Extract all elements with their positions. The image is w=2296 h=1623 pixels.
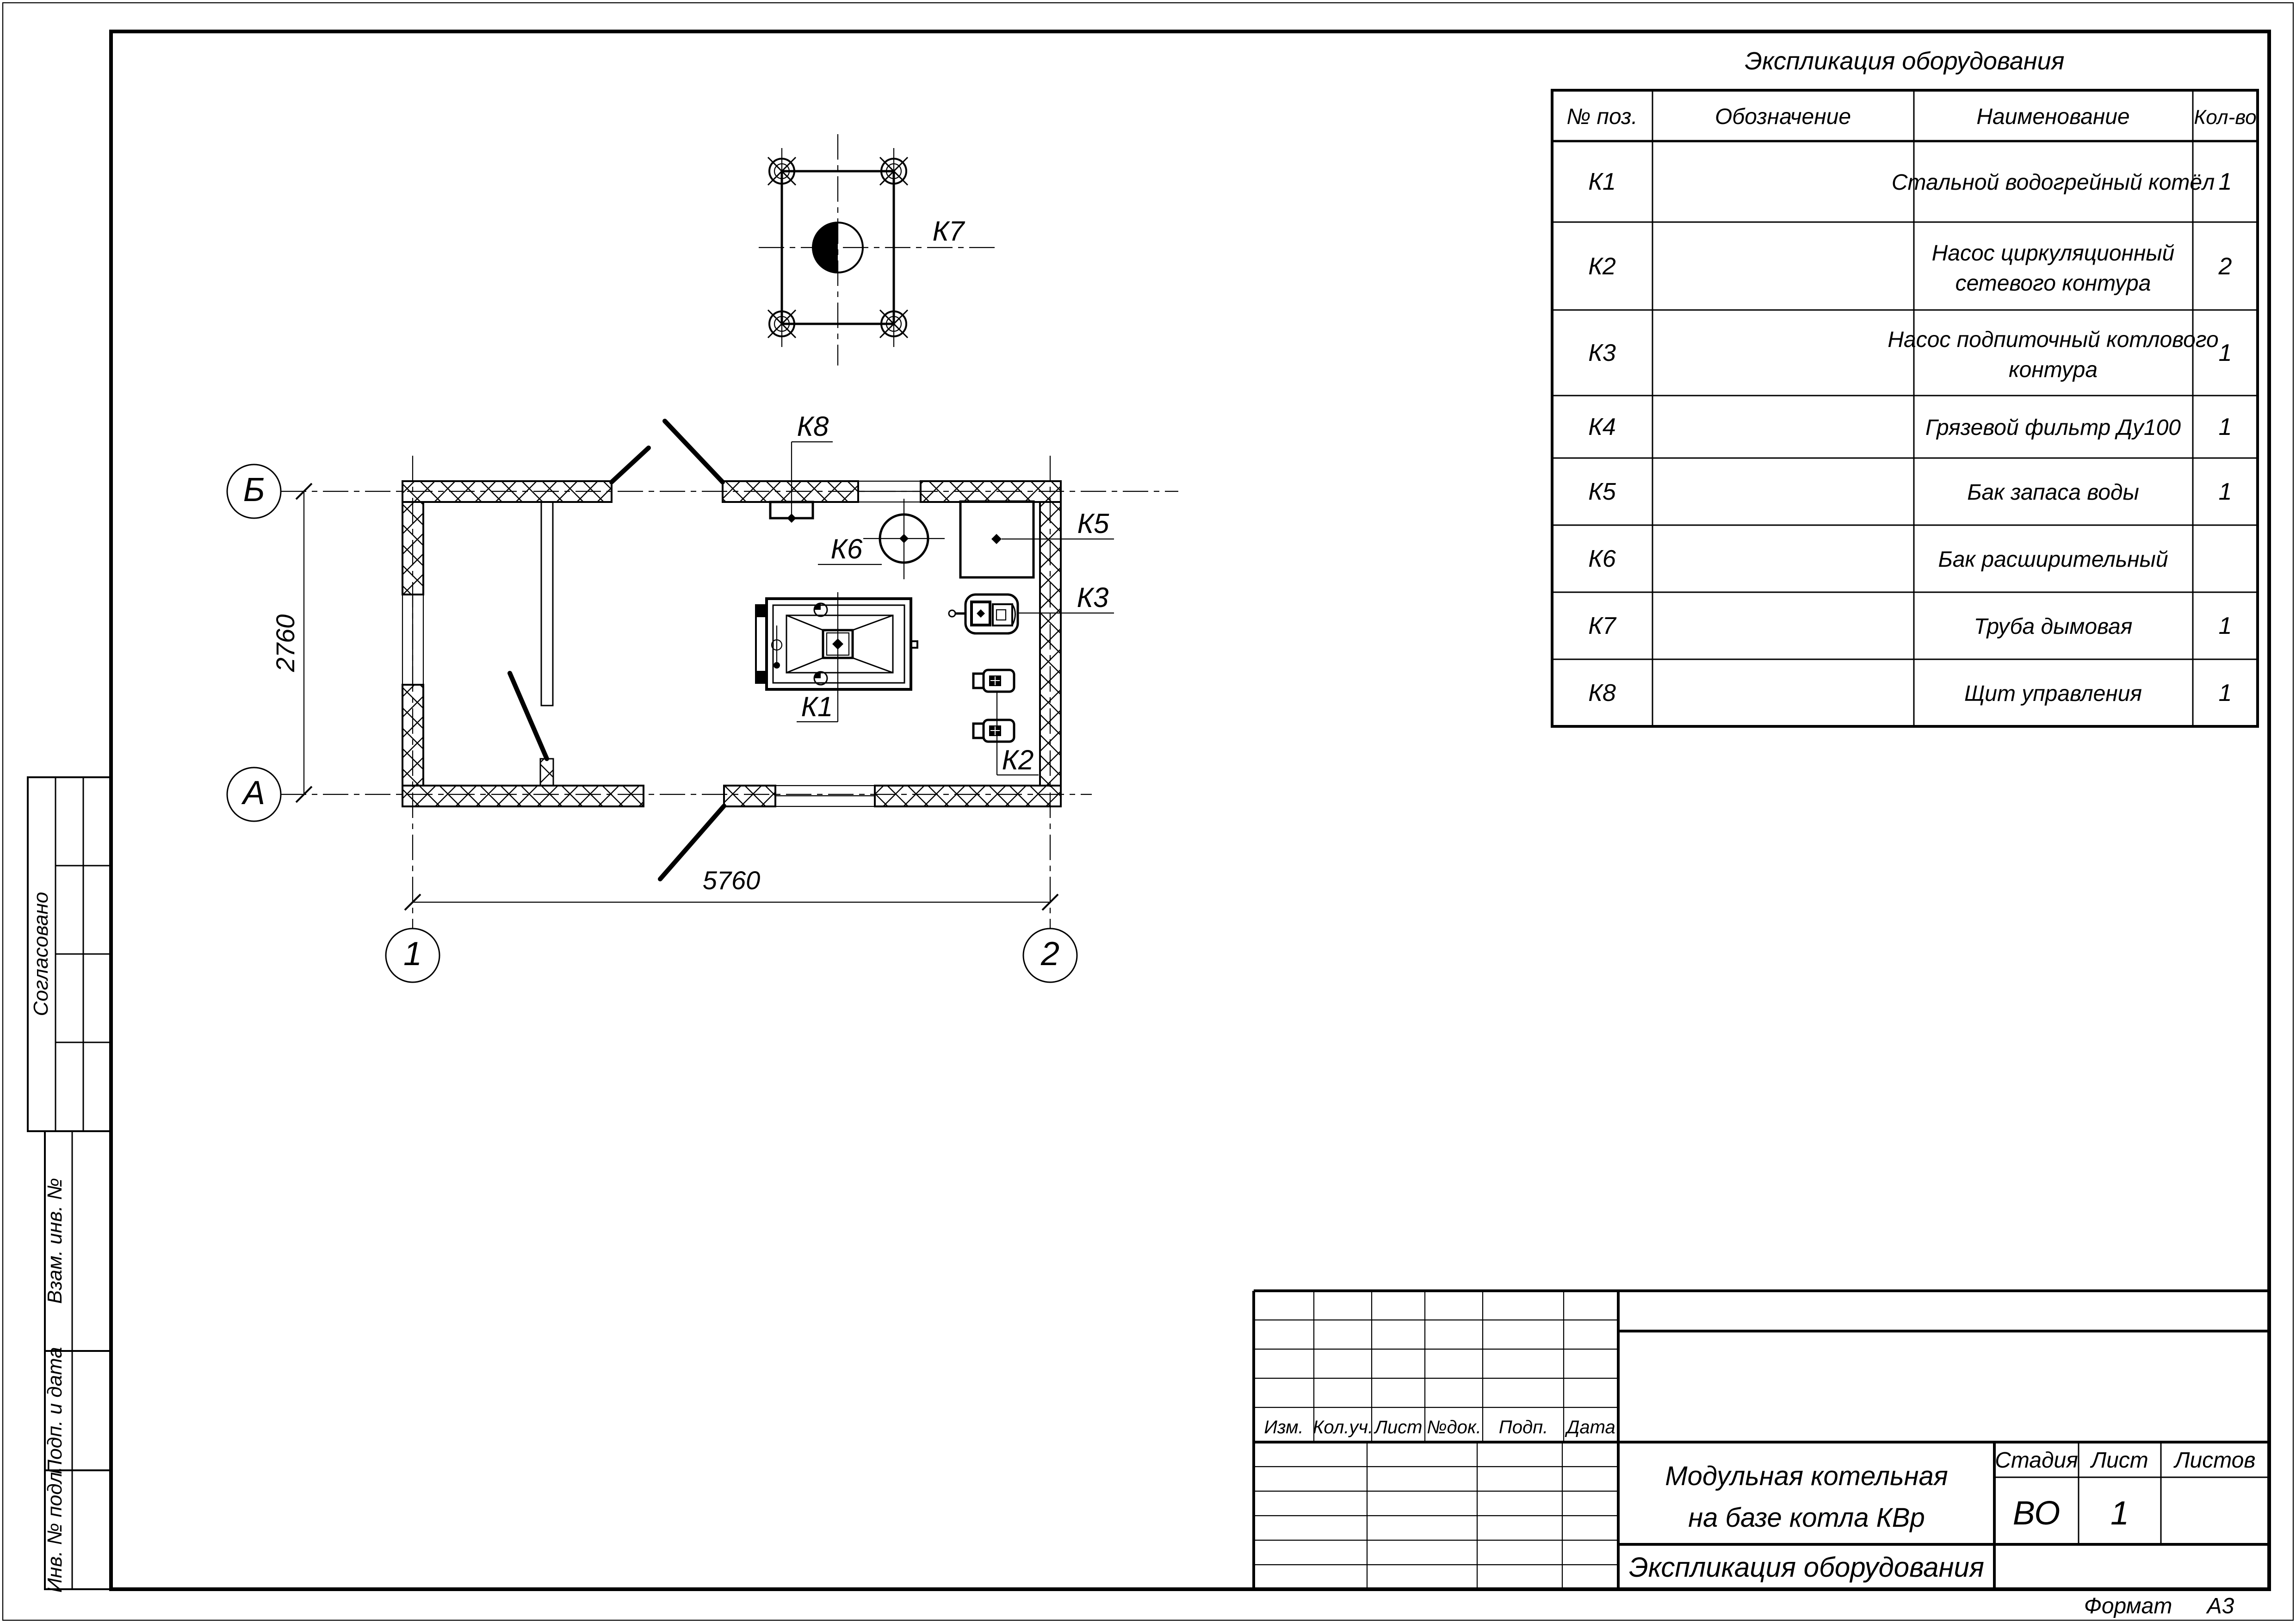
table-row-qty: 1 bbox=[2219, 168, 2232, 195]
table-row-pos: К4 bbox=[1588, 414, 1616, 440]
table-row-name: Бак расширительный bbox=[1938, 547, 2168, 572]
stage-label: Стадия bbox=[1995, 1448, 2078, 1473]
pump-k3: К3 bbox=[949, 582, 1114, 633]
dim-text-5760: 5760 bbox=[703, 866, 761, 895]
col-header-qty: Кол-во bbox=[2194, 106, 2256, 129]
drawing-sheet: Согласовано Взам. инв. № Подп. и дата Ин… bbox=[0, 0, 2296, 1623]
table-row-pos: К7 bbox=[1588, 613, 1617, 639]
rev-header-koluch: Кол.уч. bbox=[1313, 1417, 1373, 1437]
label-k8: К8 bbox=[797, 411, 829, 442]
table-row-qty: 1 bbox=[2219, 340, 2232, 366]
tank-k5: К5 bbox=[960, 502, 1114, 577]
label-k5: К5 bbox=[1077, 508, 1109, 539]
boiler-k1: К1 bbox=[756, 592, 917, 722]
list-label: Лист bbox=[2090, 1448, 2148, 1473]
axis-bubble-b: Б bbox=[243, 471, 265, 508]
table-row-name: Грязевой фильтр Ду100 bbox=[1925, 415, 2181, 440]
table-row-pos: К1 bbox=[1588, 168, 1616, 195]
table-row-name: Насос подпиточный котлового bbox=[1888, 328, 2218, 352]
table-row-pos: К8 bbox=[1588, 680, 1616, 706]
dimension-vertical: 2760 bbox=[271, 483, 312, 802]
table-row-qty: 1 bbox=[2219, 414, 2232, 440]
floor-plan: Б А 1 2 2760 5760 bbox=[227, 411, 1178, 982]
table-row-name: Щит управления bbox=[1964, 681, 2142, 706]
table-row-qty: 1 bbox=[2219, 478, 2232, 505]
doc-title: Экспликация оборудования bbox=[1629, 1552, 1984, 1583]
col-header-designation: Обозначение bbox=[1715, 105, 1851, 129]
table-row-pos: К6 bbox=[1588, 545, 1616, 572]
equipment-table-title: Экспликация оборудования bbox=[1745, 47, 2064, 75]
stamp-approved-label: Согласовано bbox=[30, 892, 52, 1016]
rev-header-izm: Изм. bbox=[1264, 1417, 1303, 1437]
label-k7: К7 bbox=[933, 216, 965, 247]
side-stamps: Согласовано Взам. инв. № Подп. и дата Ин… bbox=[28, 777, 111, 1593]
axis-bubble-a: А bbox=[241, 774, 265, 811]
walls bbox=[402, 481, 1061, 806]
chimney-detail-k7: К7 bbox=[759, 134, 999, 365]
pump-icon bbox=[973, 720, 1014, 742]
partition-wall bbox=[541, 502, 553, 706]
pump-icon bbox=[973, 670, 1014, 692]
format-label: Формат bbox=[2084, 1594, 2172, 1618]
col-header-name: Наименование bbox=[1976, 105, 2129, 129]
table-row-name: Бак запаса воды bbox=[1967, 480, 2139, 505]
stamp-inv-label: Инв. № подл. bbox=[43, 1466, 66, 1592]
tank-k6: К6 bbox=[818, 499, 945, 579]
table-row-pos: К5 bbox=[1588, 478, 1616, 505]
door-leaf bbox=[665, 421, 723, 482]
rev-header-ndok: №док. bbox=[1427, 1417, 1481, 1437]
format-value: А3 bbox=[2206, 1594, 2234, 1618]
table-row-pos: К3 bbox=[1588, 340, 1616, 366]
rev-header-data: Дата bbox=[1565, 1417, 1615, 1437]
table-row-qty: 1 bbox=[2219, 613, 2232, 639]
stamp-vzam-label: Взам. инв. № bbox=[43, 1178, 66, 1304]
equipment-table: Экспликация оборудования № поз. Обозначе… bbox=[1552, 47, 2258, 726]
table-row-name: Труба дымовая bbox=[1974, 614, 2133, 639]
project-title-line1: Модульная котельная bbox=[1665, 1461, 1948, 1491]
table-row-name2: сетевого контура bbox=[1956, 271, 2151, 296]
axis-bubbles: Б А 1 2 bbox=[227, 465, 1077, 982]
list-value: 1 bbox=[2110, 1495, 2129, 1532]
label-k6: К6 bbox=[831, 533, 863, 564]
axis-bubble-1: 1 bbox=[403, 935, 422, 973]
door-leaf bbox=[612, 448, 649, 482]
project-title-line2: на базе котла КВр bbox=[1688, 1503, 1925, 1533]
label-k2: К2 bbox=[1002, 744, 1034, 775]
pumps-k2: К2 bbox=[973, 670, 1039, 775]
axis-bubble-2: 2 bbox=[1040, 935, 1059, 973]
table-row-pos: К2 bbox=[1588, 253, 1616, 280]
label-k3: К3 bbox=[1077, 582, 1109, 613]
lists-label: Листов bbox=[2173, 1448, 2256, 1473]
label-k1: К1 bbox=[801, 691, 833, 722]
dimension-horizontal: 5760 bbox=[405, 866, 1058, 910]
table-row-qty: 2 bbox=[2218, 253, 2232, 280]
stage-value: ВО bbox=[2013, 1495, 2060, 1532]
rev-header-podp: Подп. bbox=[1499, 1417, 1548, 1437]
table-row-name: Насос циркуляционный bbox=[1932, 241, 2175, 266]
table-row-qty: 1 bbox=[2219, 680, 2232, 706]
stamp-podp-label: Подп. и дата bbox=[43, 1347, 66, 1474]
table-row-name2: контура bbox=[2009, 358, 2098, 382]
table-row-name: Стальной водогрейный котёл bbox=[1892, 170, 2215, 195]
dim-text-2760: 2760 bbox=[271, 614, 300, 673]
col-header-pos: № поз. bbox=[1566, 105, 1638, 129]
control-panel-k8: К8 bbox=[770, 411, 833, 523]
title-block: Изм. Кол.уч. Лист №док. Подп. Дата Модул… bbox=[1254, 1291, 2269, 1618]
rev-header-list: Лист bbox=[1374, 1417, 1423, 1437]
